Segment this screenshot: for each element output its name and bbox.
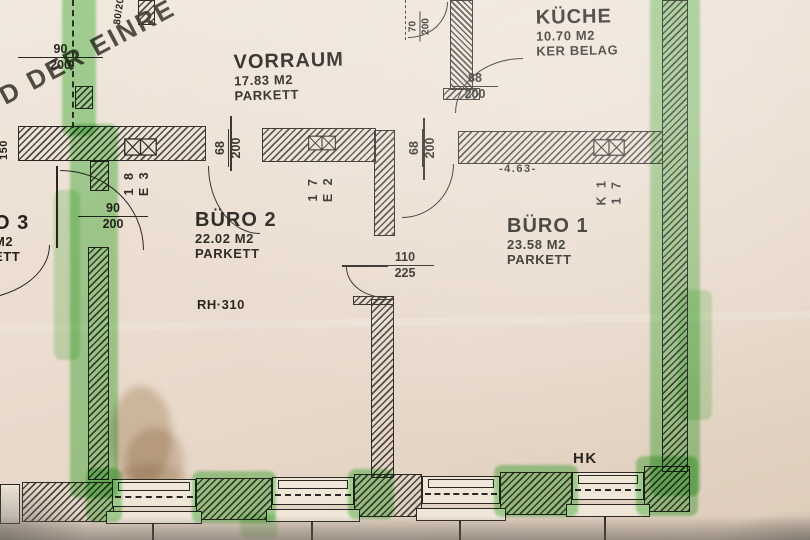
room-floor: PARKETT [507, 253, 589, 267]
dimension-door-top-small: 70 200 [402, 8, 438, 44]
highlighter-pier [348, 469, 394, 519]
code-line: 1 7 [306, 176, 321, 202]
dimension-overall-width: -4.63- [499, 163, 537, 175]
room-floor: PARKETT [234, 87, 345, 104]
window-sill [266, 509, 360, 522]
room-floor: KER BELAG [536, 44, 618, 60]
unit-code-e3: 1 8 E 3 [114, 160, 160, 206]
dim-numerator: 70 [409, 20, 419, 31]
wall-divider-upper [374, 130, 395, 236]
code-line: 1 8 [122, 170, 137, 196]
window [572, 472, 644, 500]
window-axis [604, 517, 606, 540]
highlighter-right-blob [678, 290, 712, 420]
door-arc-e2 [402, 164, 454, 218]
window-axis [311, 522, 313, 540]
dim-numerator: 68 [214, 141, 227, 155]
radiator-label: HK [573, 451, 598, 468]
window [112, 479, 196, 507]
room-floor-fragment: ETT [0, 250, 29, 264]
dim-numerator: 68 [408, 141, 421, 155]
window-axis [459, 521, 461, 540]
window [0, 484, 20, 524]
dimension-door-e2: 68 200 [400, 126, 444, 170]
room-height-label: RH·310 [197, 298, 245, 312]
highlighter-pier [636, 456, 698, 516]
room-name: VORRAUM [233, 49, 344, 74]
room-area-fragment: M2 [0, 235, 29, 249]
code-line: K 1 [594, 179, 609, 206]
room-area: 17.83 M2 [234, 72, 345, 89]
highlighter-right-wall [650, 0, 700, 496]
room-label-buero3: O 3 M2 ETT [0, 212, 29, 265]
room-label-buero1: BÜRO 1 23.58 M2 PARKETT [507, 215, 589, 268]
room-name: BÜRO 1 [507, 215, 589, 237]
window [422, 476, 500, 504]
wall-divider-cap [353, 296, 394, 305]
dimension-edge-left: 150 [0, 130, 24, 170]
flue-cross-icon [124, 136, 157, 158]
window-sill [416, 508, 506, 521]
room-name: KÜCHE [536, 5, 618, 28]
dim-denominator: 200 [424, 138, 437, 159]
dim-numerator: 88 [468, 72, 482, 85]
dim-denominator: 200 [465, 88, 486, 101]
wall-top-right [458, 131, 663, 164]
code-line: E 2 [321, 176, 336, 202]
dim-denominator: 200 [230, 138, 243, 159]
dimension-door-e3: 68 200 [206, 126, 250, 170]
room-label-kueche: KÜCHE 10.70 M2 KER BELAG [536, 5, 619, 59]
dim-numerator: 110 [395, 251, 415, 264]
room-name-fragment: O 3 [0, 212, 29, 234]
dim-denominator: 225 [395, 267, 416, 280]
room-area: 10.70 M2 [536, 28, 618, 44]
highlighter-drip [240, 514, 278, 538]
unit-code-k1: K 1 1 7 [586, 170, 632, 214]
highlighter-pier [494, 465, 578, 517]
dimension-door-connecting: 110 225 [376, 251, 434, 279]
room-floor: PARKETT [195, 247, 277, 261]
unit-code-e2: 1 7 E 2 [298, 166, 344, 212]
flue-cross-icon [308, 132, 336, 154]
flue-cross-icon [593, 139, 625, 156]
dim-denominator: 200 [422, 18, 432, 35]
highlighter-left-top [62, 0, 96, 136]
floor-plan: D DER EINRE 80/200 VORRAUM 17.83 M2 PARK… [0, 0, 810, 540]
room-label-vorraum: VORRAUM 17.83 M2 PARKETT [233, 49, 345, 104]
code-line: 1 7 [609, 179, 624, 206]
highlighter-pier [86, 468, 122, 522]
code-line: E 3 [137, 170, 152, 196]
window [272, 477, 354, 505]
highlighter-left-blob [54, 190, 80, 360]
paper-edge-shadow-right-corner [724, 512, 810, 540]
room-area: 23.58 M2 [507, 238, 589, 252]
room-label-buero2: BÜRO 2 22.02 M2 PARKETT [195, 209, 277, 262]
window-axis [152, 524, 154, 540]
dimension-door-kueche: 88 200 [452, 72, 498, 100]
room-name: BÜRO 2 [195, 209, 277, 231]
room-area: 22.02 M2 [195, 232, 277, 246]
wall-divider-lower [371, 299, 394, 478]
